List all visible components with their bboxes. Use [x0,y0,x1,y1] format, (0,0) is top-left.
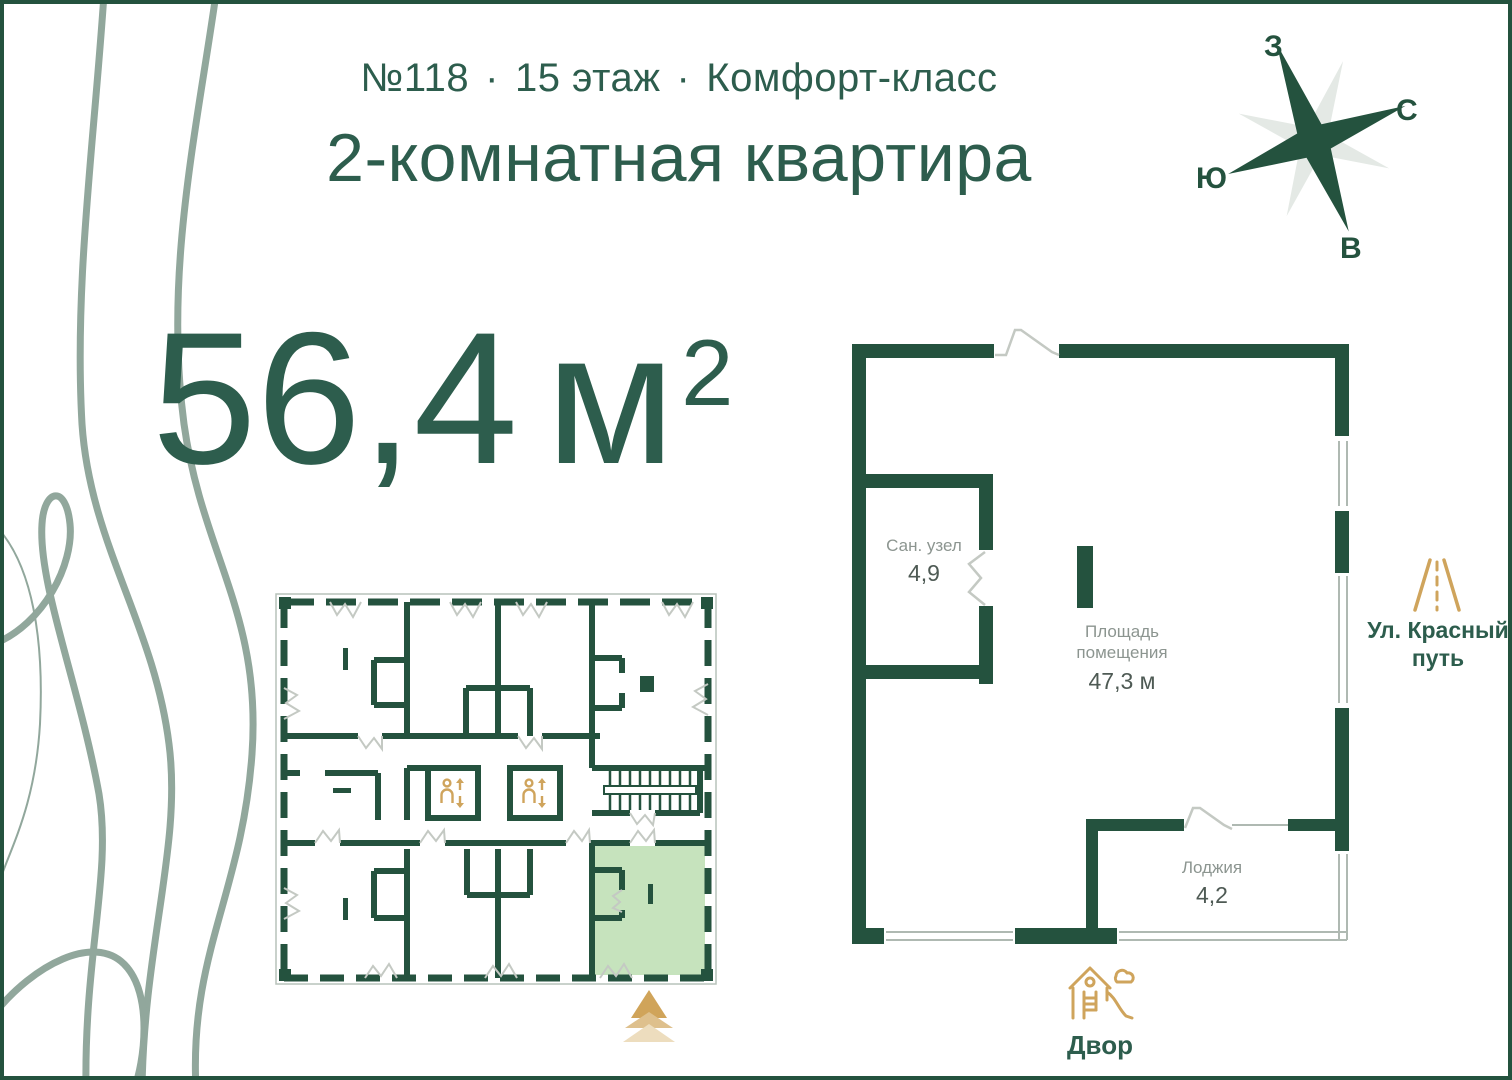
compass-south-label: Ю [1196,162,1227,195]
loggia-area: 4,2 [1154,882,1270,909]
flyer-page: №118·15 этаж·Комфорт-класс 2-комнатная к… [0,0,1512,1080]
main-room-area: 47,3 м [1056,668,1188,695]
elevator-icon [428,768,560,818]
compass-north-label: С [1396,94,1418,127]
loggia-label: Лоджия [1154,857,1270,878]
separator-dot: · [469,56,515,100]
compass-icon: З С Ю В [1194,16,1494,276]
highlighted-apartment [595,846,705,975]
apartment-number: №118 [360,56,469,100]
total-area-unit: м [546,293,675,503]
separator-dot: · [660,56,706,100]
total-area: 56,4м2 [152,304,792,492]
page-title: 2-комнатная квартира [184,119,1174,197]
floor-number: 15 этаж [515,56,661,100]
street-label: Ул. Красный путь [1360,617,1512,672]
bathroom-area: 4,9 [869,560,979,587]
entrance-door-icon [995,330,1059,355]
comfort-class: Комфорт-класс [706,56,997,100]
main-room-label: Площадь помещения [1056,621,1188,664]
apartment-meta: №118·15 этаж·Комфорт-класс [184,56,1174,101]
stairs-icon [604,771,696,810]
road-icon [1404,556,1470,614]
playground-icon [1060,962,1140,1026]
mini-floor-plan [270,588,722,1000]
compass-west-label: З [1264,30,1283,63]
wall-tick [648,884,653,904]
loggia-door-icon [1185,808,1232,829]
yard-label: Двор [1044,1030,1156,1061]
bathroom-label: Сан. узел [869,535,979,556]
total-area-value: 56,4 [152,293,518,503]
total-area-superscript: 2 [681,320,733,425]
compass-east-label: В [1340,232,1362,265]
column [1077,546,1093,608]
location-marker-icon [619,990,679,1046]
header: №118·15 этаж·Комфорт-класс 2-комнатная к… [184,56,1174,197]
